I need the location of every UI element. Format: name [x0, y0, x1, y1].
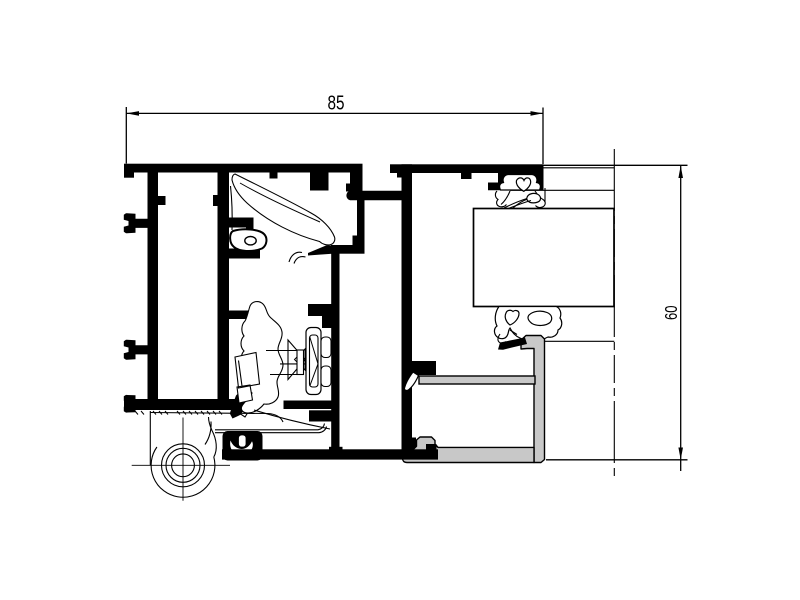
svg-text:60: 60: [661, 305, 681, 320]
svg-text:85: 85: [328, 93, 345, 115]
